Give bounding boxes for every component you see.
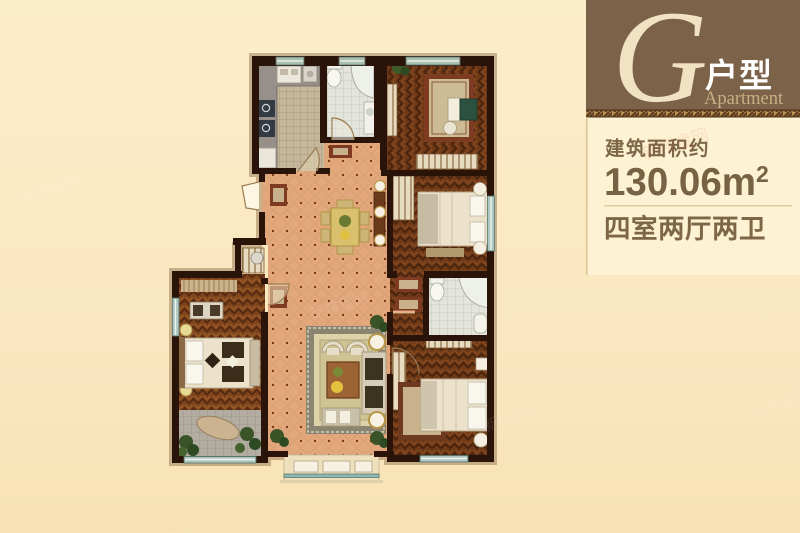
svg-text:130.06m2: 130.06m2 [604, 161, 769, 204]
svg-text:Apartment: Apartment [704, 89, 784, 109]
svg-text:四室两厅两卫: 四室两厅两卫 [604, 214, 766, 244]
